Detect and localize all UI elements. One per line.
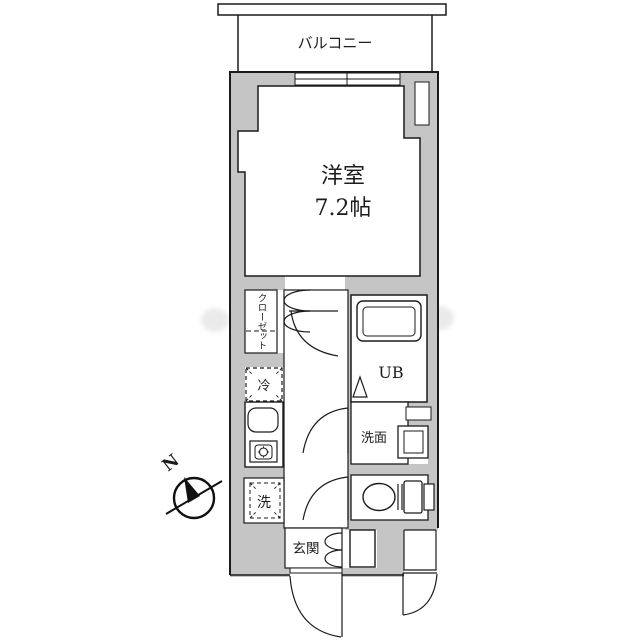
compass-icon: N [159,451,222,518]
floor-plan: バルコニー 洋室 7.2帖 [0,0,640,640]
entrance-threshold [290,568,342,573]
washer-label: 洗 [257,495,271,511]
main-room: 洋室 7.2帖 [238,86,420,276]
toilet-room [351,475,434,520]
kitchen: 冷 [245,368,283,467]
closet: クローゼット [245,290,277,353]
washroom-label: 洗面 [361,431,387,446]
balcony-railing [218,4,446,15]
unit-bath: UB [351,295,427,402]
toilet-tank [404,481,422,513]
pipe-space-slot [415,82,429,125]
balcony: バルコニー [218,4,446,72]
compass-label: N [159,451,184,476]
meter-box-door [403,573,437,615]
main-room-label: 洋室 [321,164,365,189]
kitchen-sink [248,408,278,432]
refrigerator-space: 冷 [246,368,282,401]
balcony-window [295,73,400,85]
unit-bath-label: UB [378,363,403,382]
entrance-door [290,573,342,637]
niche-outline [404,530,436,570]
entrance-label: 玄関 [293,540,320,557]
main-room-size: 7.2帖 [315,196,372,221]
toilet-bowl [363,484,395,511]
washer-space: 洗 [244,478,284,523]
refrigerator-label: 冷 [257,379,270,394]
closet-label: クローゼット [256,293,268,350]
shoe-cabinet [350,530,375,567]
meter-box [406,407,431,420]
balcony-label: バルコニー [298,34,373,52]
floor-plan-page: バルコニー 洋室 7.2帖 [0,0,640,640]
washroom: 洗面 [351,402,431,464]
